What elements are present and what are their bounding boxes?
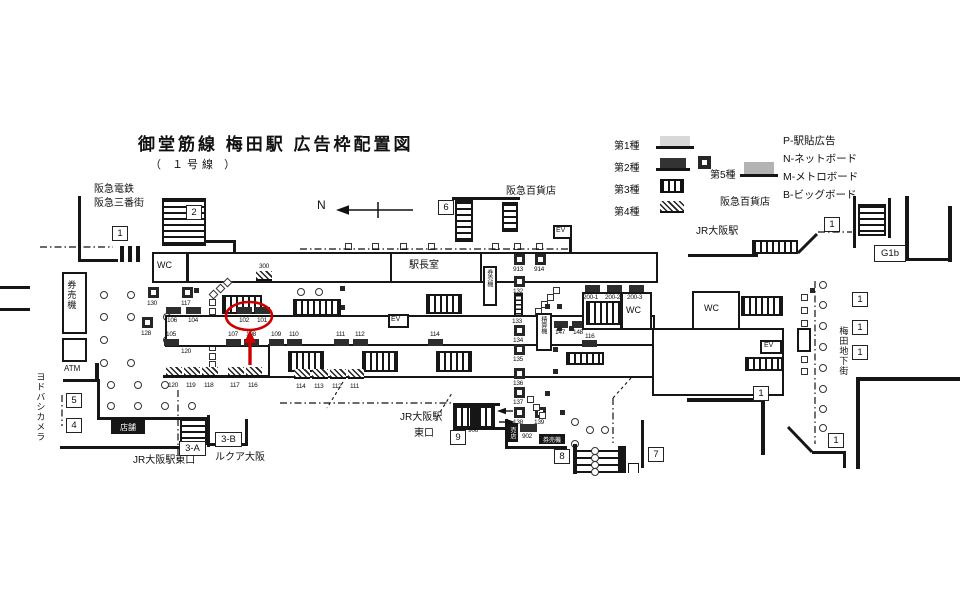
pillar [819, 364, 827, 372]
pillar-ad [514, 387, 525, 398]
ad-label-148: 148 [573, 330, 583, 337]
ad-type2 [353, 339, 368, 346]
pillar [188, 402, 196, 410]
ad-type2 [164, 339, 179, 346]
legend-type2-label: 第2種 [614, 159, 640, 174]
ad-type2 [585, 285, 600, 292]
legend-type2-swatch [660, 158, 686, 168]
ad-type4 [228, 367, 244, 377]
ad-label-913: 913 [513, 267, 523, 274]
ad-label-902: 902 [522, 434, 532, 441]
compass-north-label: N [317, 199, 326, 213]
stair-line [577, 471, 622, 473]
annotation-overlay [0, 0, 960, 605]
legend-type3-label: 第3種 [614, 181, 640, 196]
ad-label-105: 105 [166, 332, 176, 339]
ad-label-112: 112 [355, 332, 364, 339]
pillar [107, 381, 115, 389]
ad-label-107: 107 [228, 332, 238, 339]
ticket-gate [400, 243, 407, 250]
elevator-north-label: EV [556, 227, 565, 235]
ad-label-200-1: 200-1 [583, 295, 598, 302]
ad-label-120: 120 [181, 349, 191, 356]
pillar-ad [182, 287, 193, 298]
ticket-gate [128, 246, 132, 262]
kiosk-label: 売店 [507, 423, 518, 442]
stairs-platform [293, 299, 341, 316]
ad-label-102: 102 [239, 318, 249, 325]
pillar [161, 402, 169, 410]
entrance-box-1-chikagai: 1 [852, 320, 868, 335]
pillar [819, 424, 827, 432]
ad-label-111: 111 [350, 384, 359, 391]
label-jr-east-line2: 東口 [414, 428, 434, 440]
stairs-platform [426, 294, 462, 314]
ad-label-112: 112 [332, 384, 341, 391]
ad-type4 [166, 367, 182, 377]
legend-type5-baseline [740, 174, 778, 177]
ad-type2 [287, 339, 302, 346]
legend-type1-baseline [656, 146, 694, 149]
entrance-box-1-south: 1 [828, 433, 844, 448]
wall [97, 379, 100, 419]
north-arrow [336, 202, 413, 218]
pillar-ad-small [557, 304, 562, 309]
ad-label-114: 114 [430, 332, 439, 339]
entrance-box-9: 9 [450, 430, 466, 445]
pillar [819, 405, 827, 413]
wall [948, 206, 952, 262]
ad-type2 [186, 307, 201, 314]
entrance-box-3a: 3-A [179, 441, 206, 456]
pillar [127, 313, 135, 321]
ad-type4 [202, 367, 218, 377]
ad-type4 [294, 369, 310, 379]
wall [186, 252, 189, 283]
gate-square [801, 368, 808, 375]
wall [0, 308, 30, 311]
ticket-gate [345, 243, 352, 250]
entrance-box-1-chikagai: 1 [852, 345, 868, 360]
wall [812, 451, 846, 454]
ad-type2 [582, 340, 597, 347]
wall [78, 196, 81, 262]
ticket-gate [136, 246, 140, 262]
stairs-platform [362, 351, 398, 372]
ticket-gate [536, 243, 543, 250]
wc-room-label: WC [626, 305, 641, 315]
gate-square [527, 396, 534, 403]
legend-type3-swatch [660, 179, 684, 193]
gate-square [533, 404, 540, 411]
gate-booth [797, 328, 811, 352]
stair-line [577, 464, 622, 466]
pillar-ad-small [560, 410, 565, 415]
ad-type2 [607, 285, 622, 292]
stairs-g1b [858, 204, 886, 236]
pillar [134, 402, 142, 410]
pillar-ad [142, 317, 153, 328]
gate-square [209, 299, 216, 306]
label-jr-osaka-line1: JR大阪駅 [400, 412, 442, 424]
pillar-ad [514, 344, 525, 355]
ad-label-914: 914 [534, 267, 544, 274]
label-jr-osaka: JR大阪駅 [696, 226, 738, 238]
pillar [100, 359, 108, 367]
entrance-box-7: 7 [648, 447, 664, 462]
pillar-ad-small [810, 288, 815, 293]
pillar [127, 291, 135, 299]
wc-room-label: WC [704, 303, 719, 313]
ad-label-116: 116 [248, 383, 257, 390]
wall [0, 286, 30, 289]
page-subtitle: （ １号線 ） [150, 156, 239, 172]
ticket-gate [492, 243, 499, 250]
pillar-ad [514, 276, 525, 287]
ad-label-200-3: 200-3 [627, 295, 642, 302]
entrance-box-3b: 3-B [215, 432, 242, 447]
pillar [819, 281, 827, 289]
entrance-box-5: 5 [66, 393, 82, 408]
legend-code-p: P-駅貼広告 [783, 133, 836, 148]
gate-diamond [216, 284, 226, 294]
station-ad-layout-map: 御堂筋線 梅田駅 広告枠配置図 （ １号線 ） 第1種 第2種 第3種 第4種 … [0, 0, 960, 605]
stairs-dept-west [455, 200, 473, 242]
label-umeda-chikagai: 梅田地下街 [838, 326, 848, 406]
pillar [819, 301, 827, 309]
wc-room-label: WC [157, 260, 172, 270]
pillar [100, 313, 108, 321]
ad-type4 [246, 367, 262, 377]
ad-label-113: 113 [314, 384, 323, 391]
ad-type2 [166, 307, 181, 314]
gate-square [539, 412, 546, 419]
wall [856, 377, 860, 469]
gate-square [801, 320, 808, 327]
entrance-box-4: 4 [66, 418, 82, 433]
pillar-ad [514, 368, 525, 379]
stairs-dept-east [502, 202, 518, 232]
ad-label-108: 108 [246, 332, 256, 339]
pillar-ad-small [569, 326, 574, 331]
pillar-ad-small [553, 347, 558, 352]
wall [206, 240, 236, 243]
fare-adjustment-label: 精算機 [539, 316, 546, 334]
ad-type2 [226, 339, 241, 346]
ticket-machine-room-label: 券売機 [66, 280, 76, 310]
legend-code-n: N-ネットボード [783, 151, 857, 166]
wall [905, 258, 952, 261]
stairs-jr-osaka [752, 240, 798, 254]
stairs-platform [566, 352, 604, 365]
ticket-gate [514, 243, 521, 250]
legend-type1-swatch [660, 136, 690, 146]
entrance-box-g1b: G1b [874, 245, 906, 262]
station-master-label: 駅長室 [409, 260, 439, 272]
wall [856, 377, 960, 381]
exit-mark [628, 463, 639, 473]
ad-type2 [428, 339, 443, 346]
shop-label: 店舗 [111, 420, 145, 434]
pillar-ad [535, 254, 546, 265]
ad-label-119: 119 [186, 383, 195, 390]
pillar [127, 359, 135, 367]
ad-label-906: 906 [468, 428, 478, 435]
pillar-ad-small [557, 326, 562, 331]
pillar-ad [148, 287, 159, 298]
ad-type3 [514, 293, 523, 317]
label-hankyu-sanbangai: 阪急三番街 [94, 198, 144, 210]
ad-type2 [244, 339, 259, 346]
gate-square [801, 307, 808, 314]
pillar [134, 381, 142, 389]
ad-type2 [520, 424, 537, 432]
ad-type4 [256, 271, 272, 281]
ad-type2 [629, 285, 644, 292]
entrance-box-1-chikagai: 1 [852, 292, 868, 307]
side-room [62, 338, 87, 362]
stairs-platform [436, 351, 472, 372]
ad-label-200-2: 200-2 [605, 295, 620, 302]
gate-square [547, 294, 554, 301]
wall [761, 398, 765, 455]
pillar-ad-small [545, 304, 550, 309]
pillar-ad-small [553, 369, 558, 374]
wall [81, 259, 118, 262]
ad-type4 [312, 369, 328, 379]
wall [60, 446, 182, 449]
entrance-box-1-hankyu: 1 [112, 226, 128, 241]
label-hankyu-dept-center: 阪急百貨店 [506, 186, 556, 198]
stairs-east [745, 357, 783, 371]
pillar-ad [514, 325, 525, 336]
label-jr-osaka-east-exit: JR大阪駅東口 [133, 455, 195, 467]
ad-type4 [330, 369, 346, 379]
entrance-box-6: 6 [438, 200, 454, 215]
wall [573, 444, 577, 474]
wall [888, 198, 891, 238]
ad-label-104: 104 [188, 318, 198, 325]
pillar [819, 322, 827, 330]
elevator-east-label: EV [764, 342, 773, 350]
ticket-machine-kiosk-label: 券売機 [539, 434, 565, 444]
ad-label-128: 128 [141, 331, 151, 338]
gate-square [553, 287, 560, 294]
wall [620, 292, 623, 330]
wall [618, 446, 626, 473]
label-hankyu-railway: 阪急電鉄 [94, 184, 134, 196]
pillar-ad-small [340, 286, 345, 291]
ad-label-117: 117 [230, 383, 239, 390]
ad-label-137: 137 [513, 400, 523, 407]
stair-line [577, 457, 622, 459]
label-yodobashi-camera: ヨドバシカメラ [35, 372, 45, 467]
ad-label-120: 120 [168, 383, 178, 390]
ad-type2 [255, 307, 270, 314]
legend-code-m: M-メトロボード [783, 169, 858, 184]
pillar-ad [514, 407, 525, 418]
pillar [819, 385, 827, 393]
pillar [315, 288, 323, 296]
entrance-box-1-east: 1 [753, 386, 769, 401]
ad-type2 [269, 339, 284, 346]
wall [688, 254, 758, 257]
ad-label-109: 109 [271, 332, 281, 339]
ad-type4 [184, 367, 200, 377]
ticket-gate [428, 243, 435, 250]
ad-type2 [334, 339, 349, 346]
ad-label-101: 101 [257, 318, 267, 325]
wall [853, 196, 856, 248]
pillar-ad-small [545, 391, 550, 396]
ad-type2 [237, 307, 252, 314]
ad-type4 [348, 369, 364, 379]
wall [641, 420, 644, 468]
pillar [586, 426, 594, 434]
entrance-box-1-north: 1 [824, 217, 840, 232]
gate-square [801, 356, 808, 363]
stair-line [577, 450, 622, 452]
ad-label-118: 118 [204, 383, 213, 390]
label-hankyu-dept-right: 阪急百貨店 [720, 197, 770, 209]
label-lucua-osaka: ルクア大阪 [215, 452, 265, 464]
ad-label-111: 111 [336, 332, 345, 339]
pillar [591, 468, 599, 476]
legend-type1-label: 第1種 [614, 137, 640, 152]
entrance-box-2: 2 [186, 205, 202, 220]
page-title: 御堂筋線 梅田駅 広告枠配置図 [138, 130, 413, 155]
gate-square [801, 294, 808, 301]
entrance-box-8: 8 [554, 449, 570, 464]
legend-type2-baseline [656, 168, 690, 171]
ad-label-114: 114 [296, 384, 305, 391]
wall [63, 379, 99, 382]
ad-label-110: 110 [289, 332, 298, 339]
ticket-gate [372, 243, 379, 250]
pillar-ad [514, 254, 525, 265]
legend-type4-swatch [660, 201, 684, 213]
pillar-ad-small [194, 288, 199, 293]
legend-type5-swatch [744, 162, 774, 174]
legend-code-b: B-ビッグボード [783, 187, 857, 202]
wall [245, 419, 248, 446]
legend-type5-label: 第5種 [710, 166, 736, 181]
pillar [297, 288, 305, 296]
ad-label-135: 135 [513, 357, 523, 364]
stairs-east-room [586, 301, 620, 325]
pillar [107, 402, 115, 410]
gate-square [209, 308, 216, 315]
ad-label-106: 106 [167, 318, 177, 325]
pillar [571, 418, 579, 426]
stairs-east [741, 296, 783, 316]
pillar [100, 336, 108, 344]
wall [843, 451, 846, 468]
wall [569, 239, 572, 253]
ticket-machine-booth-label: 券売機 [485, 269, 492, 287]
atm-label: ATM [64, 364, 80, 373]
pillar [100, 291, 108, 299]
pillar [601, 426, 609, 434]
pillar [819, 343, 827, 351]
ad-label-130: 130 [147, 301, 157, 308]
gate-diamond [209, 290, 219, 300]
legend-type4-label: 第4種 [614, 203, 640, 218]
elevator-platform-label: EV [391, 316, 400, 324]
escalator-band [470, 406, 479, 428]
ad-label-300: 300 [259, 264, 269, 271]
wall [95, 363, 99, 379]
ticket-gate [120, 246, 124, 262]
gate-square [209, 353, 216, 360]
